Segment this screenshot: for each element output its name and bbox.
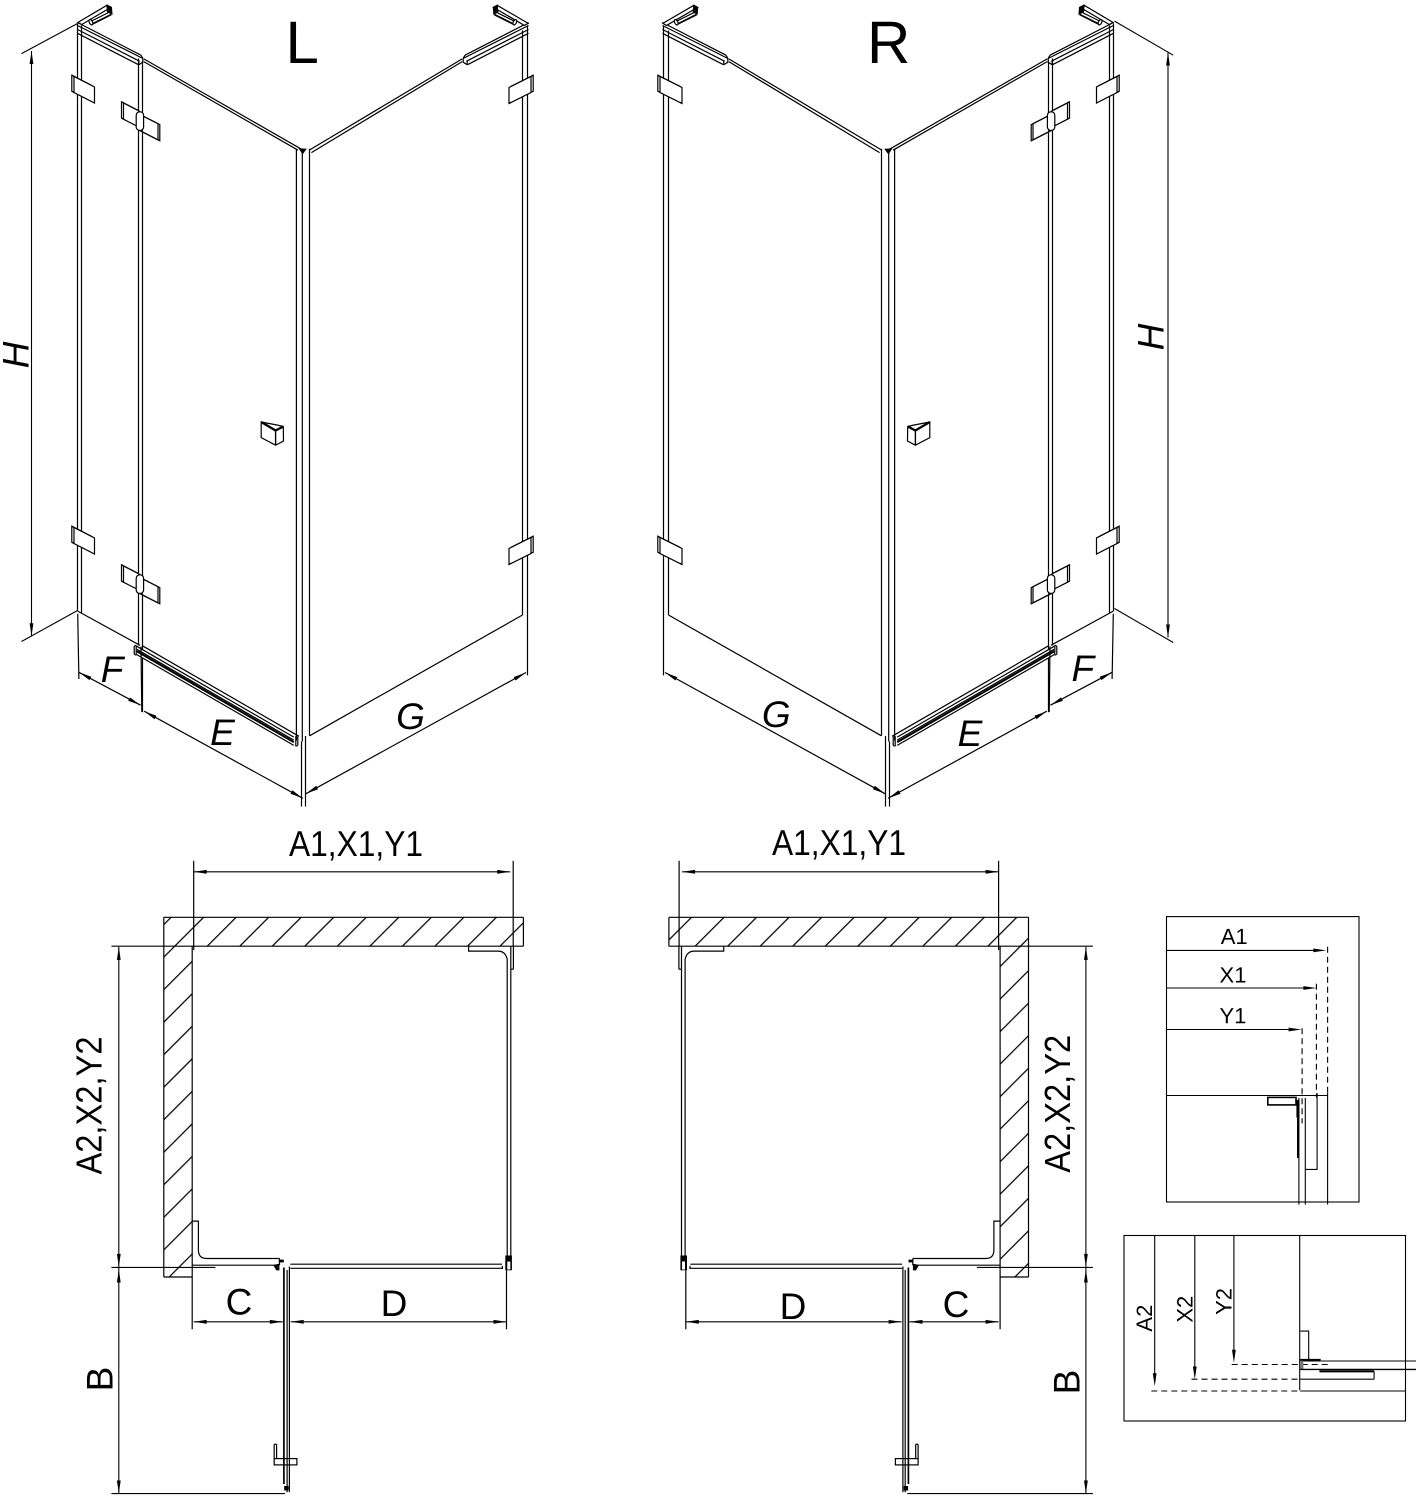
svg-text:X1: X1 <box>1220 962 1247 987</box>
svg-text:X2: X2 <box>1172 1296 1197 1323</box>
svg-text:A2: A2 <box>1132 1305 1157 1332</box>
svg-text:E: E <box>210 712 236 753</box>
svg-text:E: E <box>958 713 984 754</box>
svg-text:R: R <box>867 9 910 76</box>
svg-text:Y2: Y2 <box>1211 1288 1236 1315</box>
svg-text:L: L <box>285 9 318 76</box>
svg-text:D: D <box>381 1283 408 1324</box>
svg-text:D: D <box>780 1286 807 1327</box>
svg-text:A1,X1,Y1: A1,X1,Y1 <box>772 822 906 863</box>
svg-text:A1: A1 <box>1221 924 1248 949</box>
svg-text:A2,X2,Y2: A2,X2,Y2 <box>1037 1035 1078 1173</box>
svg-text:H: H <box>0 341 37 368</box>
svg-text:G: G <box>762 694 791 735</box>
svg-text:Y1: Y1 <box>1219 1003 1246 1028</box>
svg-text:A1,X1,Y1: A1,X1,Y1 <box>289 823 423 864</box>
svg-text:G: G <box>396 696 425 737</box>
svg-text:F: F <box>1071 648 1096 689</box>
svg-text:H: H <box>1131 323 1172 350</box>
svg-text:C: C <box>226 1281 253 1322</box>
svg-text:B: B <box>80 1367 121 1392</box>
svg-text:F: F <box>101 649 126 690</box>
svg-text:C: C <box>943 1284 970 1325</box>
svg-text:A2,X2,Y2: A2,X2,Y2 <box>69 1037 110 1175</box>
svg-text:B: B <box>1047 1370 1088 1395</box>
